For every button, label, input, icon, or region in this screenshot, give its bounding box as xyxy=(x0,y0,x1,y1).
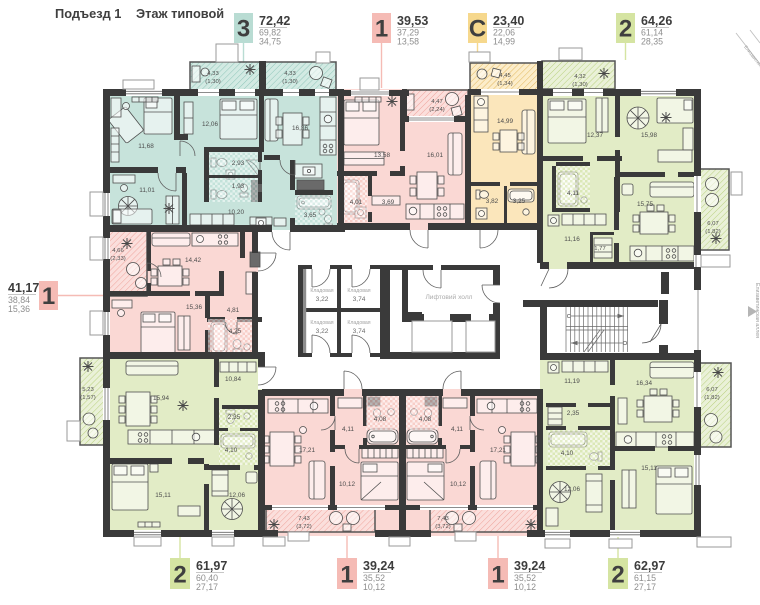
svg-text:64,26: 64,26 xyxy=(641,14,672,28)
svg-text:28,35: 28,35 xyxy=(641,37,663,47)
svg-text:(3,72): (3,72) xyxy=(435,524,450,530)
svg-text:27,17: 27,17 xyxy=(196,582,218,592)
svg-text:3,69: 3,69 xyxy=(382,199,395,206)
svg-text:2: 2 xyxy=(611,562,624,589)
svg-text:4,11: 4,11 xyxy=(342,426,354,433)
svg-text:10,12: 10,12 xyxy=(450,481,466,488)
svg-text:2,35: 2,35 xyxy=(567,410,580,417)
svg-text:10,20: 10,20 xyxy=(228,209,244,216)
svg-text:10,12: 10,12 xyxy=(363,582,385,592)
svg-text:10,12: 10,12 xyxy=(514,582,536,592)
svg-text:(2,24): (2,24) xyxy=(429,107,444,113)
svg-text:39,53: 39,53 xyxy=(397,14,428,28)
svg-text:1: 1 xyxy=(375,16,388,43)
svg-text:13,58: 13,58 xyxy=(374,152,390,159)
svg-text:3: 3 xyxy=(237,16,250,43)
svg-text:39,24: 39,24 xyxy=(363,559,394,573)
svg-text:23,40: 23,40 xyxy=(493,14,524,28)
svg-text:4,11: 4,11 xyxy=(567,190,579,197)
svg-text:15,36: 15,36 xyxy=(186,304,202,311)
svg-text:16,01: 16,01 xyxy=(427,152,443,159)
svg-text:3,25: 3,25 xyxy=(513,198,526,205)
svg-text:2: 2 xyxy=(173,562,186,589)
svg-text:4,10: 4,10 xyxy=(561,450,574,457)
svg-text:Этаж типовой: Этаж типовой xyxy=(136,6,224,21)
svg-text:(1,82): (1,82) xyxy=(705,229,720,235)
svg-text:Кладовая: Кладовая xyxy=(347,320,370,326)
svg-text:4,81: 4,81 xyxy=(227,307,240,314)
svg-text:11,19: 11,19 xyxy=(564,378,580,385)
svg-text:4,32: 4,32 xyxy=(574,74,585,80)
svg-text:4,01: 4,01 xyxy=(350,199,363,206)
svg-text:15,98: 15,98 xyxy=(641,132,657,139)
svg-text:(1,34): (1,34) xyxy=(497,81,512,87)
svg-text:1: 1 xyxy=(340,562,353,589)
svg-text:С: С xyxy=(469,16,486,43)
svg-text:12,06: 12,06 xyxy=(229,492,245,499)
svg-text:12,06: 12,06 xyxy=(564,486,580,493)
svg-text:4,10: 4,10 xyxy=(225,447,238,454)
svg-text:14,99: 14,99 xyxy=(497,118,513,125)
svg-text:4,47: 4,47 xyxy=(431,99,442,105)
svg-text:(2,33): (2,33) xyxy=(110,256,125,262)
svg-text:10,84: 10,84 xyxy=(225,376,241,383)
svg-text:15,36: 15,36 xyxy=(8,304,30,314)
svg-text:1: 1 xyxy=(491,562,504,589)
svg-text:61,97: 61,97 xyxy=(196,559,227,573)
svg-text:3,82: 3,82 xyxy=(486,198,499,205)
svg-text:3,74: 3,74 xyxy=(353,296,366,303)
svg-text:15,11: 15,11 xyxy=(155,492,171,499)
svg-text:27,17: 27,17 xyxy=(634,582,656,592)
svg-text:7,43: 7,43 xyxy=(437,516,449,522)
svg-text:72,42: 72,42 xyxy=(259,14,290,28)
svg-text:Кладовая: Кладовая xyxy=(310,320,333,326)
svg-text:15,75: 15,75 xyxy=(637,201,653,208)
svg-text:Лифтовий холл: Лифтовий холл xyxy=(425,293,472,301)
svg-text:(1,30): (1,30) xyxy=(282,79,297,85)
svg-text:1: 1 xyxy=(42,283,55,310)
svg-text:4,66: 4,66 xyxy=(112,248,124,254)
svg-text:4,33: 4,33 xyxy=(284,71,296,77)
svg-text:4,08: 4,08 xyxy=(419,416,432,423)
svg-text:Подъезд 1: Подъезд 1 xyxy=(55,6,121,21)
svg-text:15,11: 15,11 xyxy=(641,465,657,472)
svg-text:2,93: 2,93 xyxy=(232,160,245,167)
svg-text:4,11: 4,11 xyxy=(451,426,463,433)
svg-text:12,37: 12,37 xyxy=(587,132,603,139)
svg-text:3,22: 3,22 xyxy=(316,328,329,335)
svg-text:3,65: 3,65 xyxy=(304,212,317,219)
svg-text:7,43: 7,43 xyxy=(298,516,310,522)
svg-text:2,35: 2,35 xyxy=(228,414,241,421)
svg-text:62,97: 62,97 xyxy=(634,559,665,573)
svg-text:11,16: 11,16 xyxy=(564,236,580,243)
svg-text:(1,30): (1,30) xyxy=(205,79,220,85)
svg-text:16,34: 16,34 xyxy=(636,380,652,387)
svg-text:5,23: 5,23 xyxy=(82,387,94,393)
svg-text:34,75: 34,75 xyxy=(259,37,281,47)
svg-text:41,17: 41,17 xyxy=(8,281,39,295)
svg-text:(3,72): (3,72) xyxy=(296,524,311,530)
svg-text:(1,57): (1,57) xyxy=(80,395,95,401)
svg-text:4,33: 4,33 xyxy=(207,71,219,77)
svg-text:6,07: 6,07 xyxy=(707,221,718,227)
svg-text:4,08: 4,08 xyxy=(374,416,387,423)
svg-text:11,68: 11,68 xyxy=(138,143,154,150)
svg-text:14,42: 14,42 xyxy=(185,257,201,264)
svg-text:16,36: 16,36 xyxy=(292,125,308,132)
svg-text:17,21: 17,21 xyxy=(299,447,315,454)
svg-text:Кладовая: Кладовая xyxy=(310,288,333,294)
svg-text:12,06: 12,06 xyxy=(202,121,218,128)
svg-text:11,01: 11,01 xyxy=(139,187,155,194)
svg-text:39,24: 39,24 xyxy=(514,559,545,573)
svg-text:4,25: 4,25 xyxy=(229,328,242,335)
svg-text:(1,82): (1,82) xyxy=(704,395,719,401)
svg-text:(1,30): (1,30) xyxy=(572,82,587,88)
svg-text:13,58: 13,58 xyxy=(397,37,419,47)
svg-text:10,12: 10,12 xyxy=(339,481,355,488)
svg-text:1,77: 1,77 xyxy=(594,246,605,252)
svg-text:2: 2 xyxy=(619,16,632,43)
svg-text:15,94: 15,94 xyxy=(153,395,169,402)
svg-text:14,99: 14,99 xyxy=(493,37,515,47)
svg-text:3,74: 3,74 xyxy=(353,328,366,335)
svg-text:1,93: 1,93 xyxy=(232,183,245,190)
svg-text:6,07: 6,07 xyxy=(706,387,717,393)
svg-text:4,45: 4,45 xyxy=(499,73,511,79)
svg-text:17,21: 17,21 xyxy=(490,447,506,454)
svg-text:3,22: 3,22 xyxy=(316,296,329,303)
svg-text:Кладовая: Кладовая xyxy=(347,288,370,294)
